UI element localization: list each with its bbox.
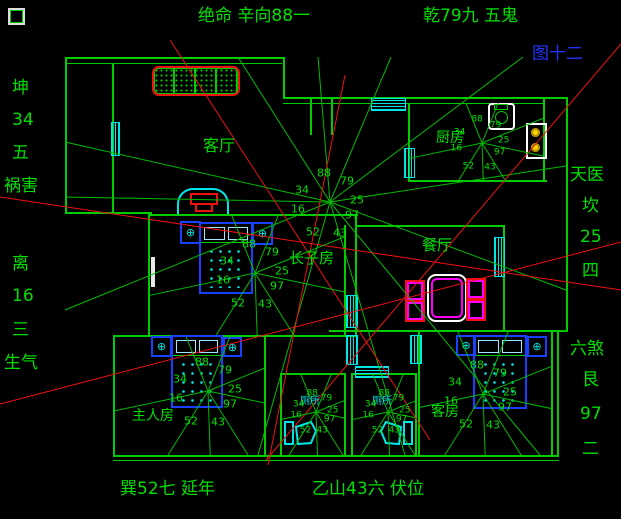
sha-line	[0, 197, 621, 290]
annotation-right2-portent: 六煞	[570, 341, 604, 358]
dining-chair	[466, 278, 486, 300]
annotation-left2-rank: 三	[12, 322, 29, 339]
pillow-icon	[478, 340, 499, 353]
star-number: 34	[220, 256, 234, 267]
star-number: 52	[306, 227, 320, 238]
star-number: 97	[498, 402, 512, 413]
star-number: 34	[365, 400, 376, 409]
wall-segment	[150, 214, 358, 216]
wall-segment	[264, 337, 266, 455]
nightstand-icon: ⊕	[180, 221, 201, 244]
star-number: 79	[218, 365, 232, 376]
nightstand-icon: ⊕	[151, 336, 172, 357]
sofa	[152, 66, 240, 96]
star-number: 34	[293, 400, 304, 409]
wall-segment	[283, 57, 285, 99]
wall-segment	[280, 373, 346, 375]
window-icon	[404, 148, 415, 178]
star-number: 88	[195, 357, 209, 368]
pillow-icon	[502, 340, 523, 353]
star-number: 79	[321, 394, 332, 403]
star-number: 16	[216, 275, 230, 286]
wall-segment	[65, 212, 152, 214]
star-number: 16	[444, 396, 458, 407]
dining-chair	[466, 299, 486, 321]
star-number: 88	[470, 360, 484, 371]
annotation-left-number: 34	[12, 112, 34, 129]
annotation-left2-portent: 生气	[4, 355, 38, 372]
room-label-dining: 餐厅	[422, 238, 452, 253]
wall-segment	[65, 57, 67, 214]
wall-segment	[283, 97, 568, 99]
pillow-icon	[199, 340, 219, 353]
star-number: 16	[291, 204, 305, 215]
star-number: 25	[498, 137, 509, 146]
dining-table	[427, 274, 467, 322]
star-number: 79	[340, 176, 354, 187]
annotation-right2-rank: 二	[582, 441, 599, 458]
window-icon	[111, 122, 120, 156]
room-label-master: 主人房	[132, 409, 174, 423]
wall-segment	[557, 332, 559, 455]
nightstand-icon: ⊕	[527, 336, 547, 357]
annotation-bottom-right: 乙山43六 伏位	[312, 481, 424, 498]
window-icon	[371, 98, 406, 111]
star-number: 97	[270, 281, 284, 292]
star-number: 16	[290, 412, 301, 421]
wall-segment	[408, 180, 547, 182]
compass-ray	[318, 57, 330, 202]
star-number: 16	[362, 412, 373, 421]
wall-segment	[310, 97, 312, 135]
tv-base-icon	[195, 204, 213, 212]
pillow-icon	[204, 227, 225, 240]
wall-segment	[344, 373, 346, 455]
wall-segment	[113, 460, 559, 461]
star-number: 43	[388, 427, 399, 436]
star-number: 43	[258, 299, 272, 310]
star-number: 43	[486, 420, 500, 431]
annotation-right2-trigram: 艮	[582, 372, 599, 389]
star-number: 79	[265, 247, 279, 258]
annotation-bottom-left: 巽52七 延年	[120, 481, 215, 498]
room-label-living: 客厅	[203, 138, 235, 154]
wall-segment	[148, 214, 150, 337]
annotation-top-right: 乾79九 五鬼	[423, 8, 518, 25]
star-number: 52	[463, 163, 474, 172]
wall-segment	[351, 373, 353, 455]
star-number: 16	[169, 393, 183, 404]
star-number: 88	[307, 390, 318, 399]
window-icon	[410, 335, 422, 364]
pillow-icon	[176, 340, 196, 353]
star-number: 16	[451, 144, 462, 153]
wall-segment	[551, 332, 553, 455]
room-star-ray	[255, 273, 344, 292]
star-number: 97	[396, 416, 407, 425]
wall-segment	[566, 97, 568, 332]
dining-table-top	[431, 278, 463, 318]
star-number: 34	[173, 374, 187, 385]
faucet-icon	[494, 104, 508, 110]
star-number: 88	[242, 239, 256, 250]
window-icon	[494, 237, 505, 277]
star-number: 88	[379, 390, 390, 399]
window-icon	[346, 295, 358, 328]
star-number: 52	[231, 298, 245, 309]
star-number: 88	[471, 115, 482, 124]
star-number: 34	[448, 377, 462, 388]
star-number: 52	[300, 426, 311, 435]
annotation-right-number: 25	[580, 229, 602, 246]
annotation-left2-number: 16	[12, 288, 34, 305]
canvas-origin-marker	[8, 8, 25, 25]
annotation-left-rank: 五	[12, 145, 29, 162]
star-number: 52	[184, 416, 198, 427]
bed-pillows	[475, 337, 525, 356]
nightstand-icon: ⊕	[223, 337, 242, 357]
annotation-right2-number: 97	[580, 406, 602, 423]
room-label-eldest-son: 长子房	[289, 251, 334, 266]
star-number: 97	[345, 210, 359, 221]
window-icon	[346, 335, 358, 365]
door-leaf	[151, 257, 155, 287]
annotation-right-portent: 天医	[570, 167, 604, 184]
compass-ray	[330, 166, 566, 202]
stove-icon	[526, 123, 547, 159]
cad-floorplan-canvas[interactable]: 绝命 辛向88一 乾79九 五鬼 图十二 巽52七 延年 乙山43六 伏位 坤 …	[0, 0, 621, 519]
burner-icon	[531, 143, 540, 152]
room-star-ray	[482, 143, 483, 180]
annotation-left-trigram: 坤	[12, 80, 29, 97]
star-number: 97	[223, 399, 237, 410]
star-number: 79	[490, 122, 501, 131]
star-number: 79	[393, 394, 404, 403]
star-number: 34	[295, 185, 309, 196]
star-number: 97	[494, 149, 505, 158]
nightstand-icon: ⊕	[456, 335, 476, 356]
bed-pillows	[173, 337, 221, 356]
wall-segment	[65, 63, 282, 64]
dining-chair	[405, 280, 425, 302]
star-number: 43	[211, 417, 225, 428]
star-number: 52	[372, 426, 383, 435]
burner-icon	[531, 128, 540, 137]
annotation-left-portent: 祸害	[4, 178, 38, 195]
star-number: 25	[503, 387, 517, 398]
annotation-left2-trigram: 离	[12, 256, 29, 273]
star-number: 43	[333, 228, 347, 239]
star-number: 88	[317, 168, 331, 179]
star-number: 25	[275, 266, 289, 277]
star-number: 52	[459, 419, 473, 430]
star-number: 25	[228, 384, 242, 395]
annotation-right-rank: 四	[582, 263, 599, 280]
room-star-ray	[255, 273, 257, 335]
window-icon	[355, 366, 389, 378]
wall-segment	[113, 455, 559, 457]
star-number: 97	[324, 416, 335, 425]
annotation-top-left: 绝命 辛向88一	[198, 8, 310, 25]
wall-segment	[329, 330, 559, 332]
wall-segment	[355, 225, 505, 227]
figure-number-label: 图十二	[532, 46, 583, 63]
tv-cabinet	[177, 188, 229, 214]
wall-segment	[415, 373, 417, 455]
star-number: 25	[350, 195, 364, 206]
star-number: 43	[484, 163, 495, 172]
wall-segment	[280, 373, 282, 455]
star-number: 34	[454, 129, 465, 138]
wall-segment	[65, 57, 285, 59]
wall-segment	[331, 97, 333, 135]
star-number: 43	[316, 427, 327, 436]
star-number: 79	[493, 368, 507, 379]
annotation-right-trigram: 坎	[582, 198, 599, 215]
wall-segment	[113, 335, 115, 457]
dining-chair	[405, 300, 425, 322]
